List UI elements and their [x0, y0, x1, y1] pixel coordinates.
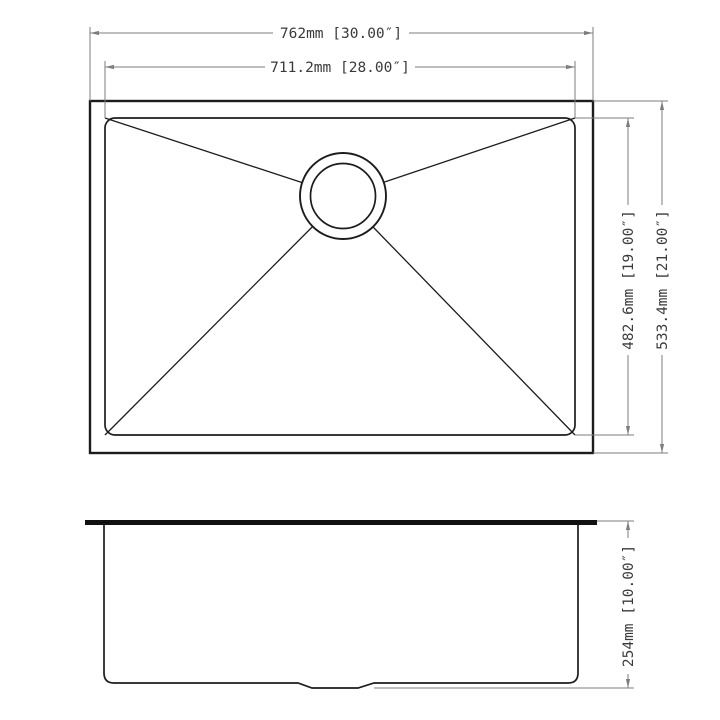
arrowhead-top	[626, 521, 630, 530]
bowl-profile	[104, 525, 578, 688]
arrowhead-left	[90, 31, 99, 35]
top-view	[90, 101, 593, 453]
arrowhead-right	[566, 65, 575, 69]
dimension-bowl-height: 254mm [10.00″]	[374, 521, 637, 688]
arrowhead-top	[626, 118, 630, 127]
sink-dimension-drawing-page: 762mm [30.00″] 711.2mm [28.00″] 482.6mm …	[0, 0, 720, 720]
inner-width-label: 711.2mm [28.00″]	[270, 60, 410, 76]
arrowhead-bottom	[626, 679, 630, 688]
arrowhead-bottom	[626, 426, 630, 435]
outer-width-label: 762mm [30.00″]	[280, 26, 402, 42]
countertop-rim-bar	[85, 520, 597, 525]
sink-technical-drawing: 762mm [30.00″] 711.2mm [28.00″] 482.6mm …	[0, 0, 720, 720]
outer-depth-label: 533.4mm [21.00″]	[655, 210, 671, 350]
side-view	[85, 520, 597, 688]
arrowhead-left	[105, 65, 114, 69]
arrowhead-top	[660, 101, 664, 110]
arrowhead-bottom	[660, 444, 664, 453]
inner-depth-label: 482.6mm [19.00″]	[621, 210, 637, 350]
drain-outer-circle	[300, 153, 386, 239]
arrowhead-right	[584, 31, 593, 35]
bowl-height-label: 254mm [10.00″]	[621, 545, 637, 667]
